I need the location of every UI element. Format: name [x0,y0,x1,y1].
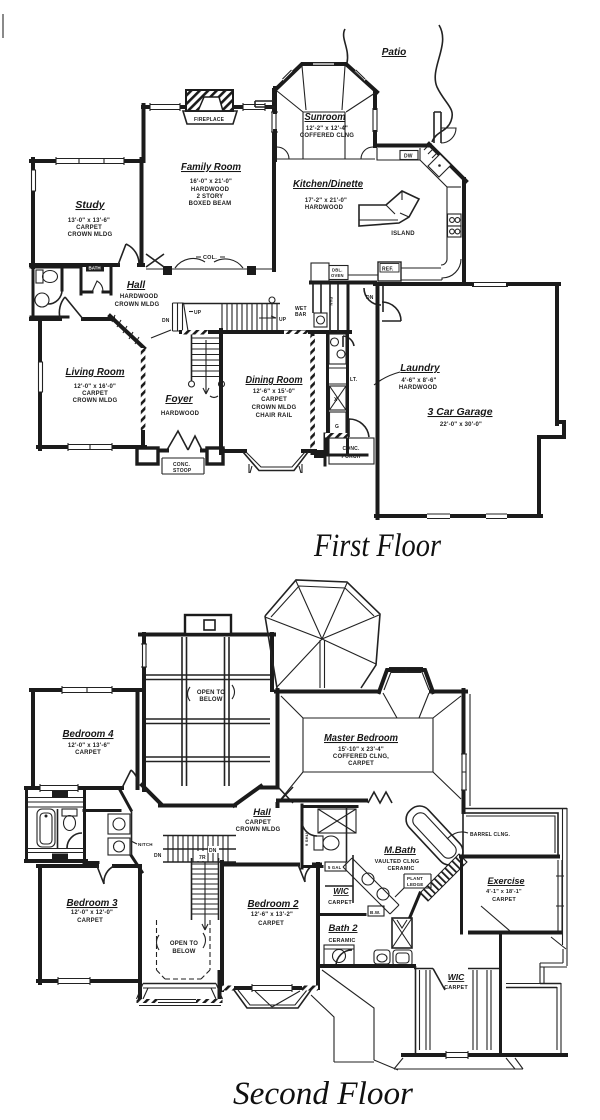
svg-text:5 GAL: 5 GAL [328,865,342,870]
svg-text:COFFERED CLNG: COFFERED CLNG [300,133,354,139]
svg-text:HARDWOOD: HARDWOOD [191,187,230,193]
svg-text:12'-0" x 13'-6": 12'-0" x 13'-6" [68,743,110,749]
svg-text:4'-6" x 8'-6": 4'-6" x 8'-6" [401,378,436,384]
svg-text:PAN: PAN [329,297,334,306]
svg-text:B.W.: B.W. [370,910,381,915]
svg-text:OPEN TO: OPEN TO [170,941,198,947]
svg-text:Dining Room: Dining Room [246,375,303,386]
svg-text:12'-6" x 13'-2": 12'-6" x 13'-2" [251,912,293,918]
svg-text:PORCH: PORCH [341,454,360,460]
svg-text:Family Room: Family Room [181,161,241,173]
svg-text:BAR: BAR [295,312,307,318]
svg-text:12'-0" x 16'-0": 12'-0" x 16'-0" [74,384,116,390]
svg-text:DN: DN [154,853,162,859]
svg-text:CARPET: CARPET [328,900,352,906]
svg-text:4'-1" x 18'-1": 4'-1" x 18'-1" [486,889,522,895]
svg-text:ISLAND: ISLAND [391,231,415,237]
svg-text:CERAMIC: CERAMIC [328,938,355,944]
svg-text:BATH: BATH [89,266,101,271]
svg-text:BOXED BEAM: BOXED BEAM [189,201,232,207]
svg-text:DN: DN [162,318,170,324]
svg-text:UP: UP [279,317,287,323]
svg-text:CARPET: CARPET [245,820,271,826]
svg-text:WIC: WIC [333,887,349,896]
svg-text:Bedroom 3: Bedroom 3 [67,897,118,909]
svg-text:REF.: REF. [382,267,394,273]
svg-text:Bedroom 2: Bedroom 2 [248,898,299,910]
svg-text:CARPET: CARPET [492,897,516,903]
svg-text:CHAIR RAIL: CHAIR RAIL [256,413,293,419]
svg-text:VAULTED CLNG: VAULTED CLNG [375,859,420,865]
svg-text:DN: DN [209,848,217,854]
svg-text:DBL.: DBL. [332,268,343,273]
svg-text:15'-10" x 23'-4": 15'-10" x 23'-4" [338,747,384,753]
svg-text:CONC.: CONC. [342,446,360,452]
svg-text:CARPET: CARPET [258,921,284,927]
svg-text:COL.: COL. [203,255,217,261]
svg-text:STOOP: STOOP [173,468,192,474]
svg-text:DN: DN [366,295,374,301]
svg-text:CARPET: CARPET [444,985,468,991]
svg-text:CARPET: CARPET [261,397,287,403]
svg-text:CARPET: CARPET [77,918,103,924]
svg-text:UP: UP [194,310,202,316]
svg-text:CARPET: CARPET [82,391,108,397]
svg-text:BELOW: BELOW [172,949,195,955]
svg-text:HARDWOOD: HARDWOOD [305,205,344,211]
svg-text:M.Bath: M.Bath [384,845,416,856]
svg-text:Study: Study [75,199,105,211]
svg-text:CROWN MLDG: CROWN MLDG [68,232,113,238]
svg-text:CERAMIC: CERAMIC [387,866,414,872]
svg-text:HARDWOOD: HARDWOOD [399,385,438,391]
svg-text:X: X [334,397,338,403]
svg-text:Second Floor: Second Floor [233,1076,413,1112]
svg-text:Hall: Hall [127,280,146,291]
svg-text:12'-6" x 15'-0": 12'-6" x 15'-0" [253,389,295,395]
svg-text:COFFERED CLNG,: COFFERED CLNG, [333,754,389,760]
svg-text:LEDGE: LEDGE [407,882,424,887]
svg-text:G: G [335,424,339,430]
svg-text:FIREPLACE: FIREPLACE [194,117,225,123]
svg-text:Master Bedroom: Master Bedroom [324,732,398,744]
svg-text:Patio: Patio [382,47,406,58]
svg-text:CROWN MLDG: CROWN MLDG [236,827,281,833]
svg-text:Kitchen/Dinette: Kitchen/Dinette [293,179,363,190]
svg-text:12'-2" x 12'-4": 12'-2" x 12'-4" [306,126,348,132]
svg-text:Exercise: Exercise [488,876,526,887]
svg-text:17'-2" x 21'-0": 17'-2" x 21'-0" [305,198,347,204]
svg-text:Hall: Hall [253,807,271,818]
svg-text:Foyer: Foyer [165,394,193,405]
svg-text:OPEN TO: OPEN TO [197,690,225,696]
svg-text:PLANT: PLANT [407,876,423,881]
svg-text:BARREL CLNG.: BARREL CLNG. [470,832,510,838]
svg-text:CROWN MLDG: CROWN MLDG [73,398,118,404]
svg-text:2 STORY: 2 STORY [197,194,224,200]
svg-text:CROWN MLDG: CROWN MLDG [252,405,297,411]
svg-text:First Floor: First Floor [313,528,441,564]
svg-text:CARPET: CARPET [76,225,102,231]
svg-text:HARDWOOD: HARDWOOD [161,411,200,417]
svg-text:LT.: LT. [350,377,358,383]
svg-text:CARPET: CARPET [348,761,374,767]
svg-text:3 Car Garage: 3 Car Garage [428,406,493,418]
svg-text:Laundry: Laundry [400,363,440,374]
svg-text:Bedroom 4: Bedroom 4 [63,728,114,740]
svg-text:HARDWOOD: HARDWOOD [120,294,159,300]
svg-text:Sunroom: Sunroom [305,112,346,123]
svg-text:13'-0" x 13'-6": 13'-0" x 13'-6" [68,218,110,224]
svg-text:WIC: WIC [448,972,465,982]
svg-text:Living Room: Living Room [66,366,125,378]
svg-text:DW: DW [404,154,413,160]
svg-text:12'-0" x 12'-0": 12'-0" x 12'-0" [71,910,113,916]
svg-text:22'-0" x 30'-0": 22'-0" x 30'-0" [440,422,482,428]
svg-text:OVEN: OVEN [331,273,344,278]
svg-text:CROWN MLDG: CROWN MLDG [115,302,160,308]
svg-text:Bath 2: Bath 2 [328,923,358,934]
svg-text:BELOW: BELOW [199,697,222,703]
svg-text:CARPET: CARPET [75,750,101,756]
svg-text:7R: 7R [199,855,206,861]
svg-text:NITCH: NITCH [138,842,153,847]
svg-text:16'-0" x 21'-0": 16'-0" x 21'-0" [190,179,232,185]
